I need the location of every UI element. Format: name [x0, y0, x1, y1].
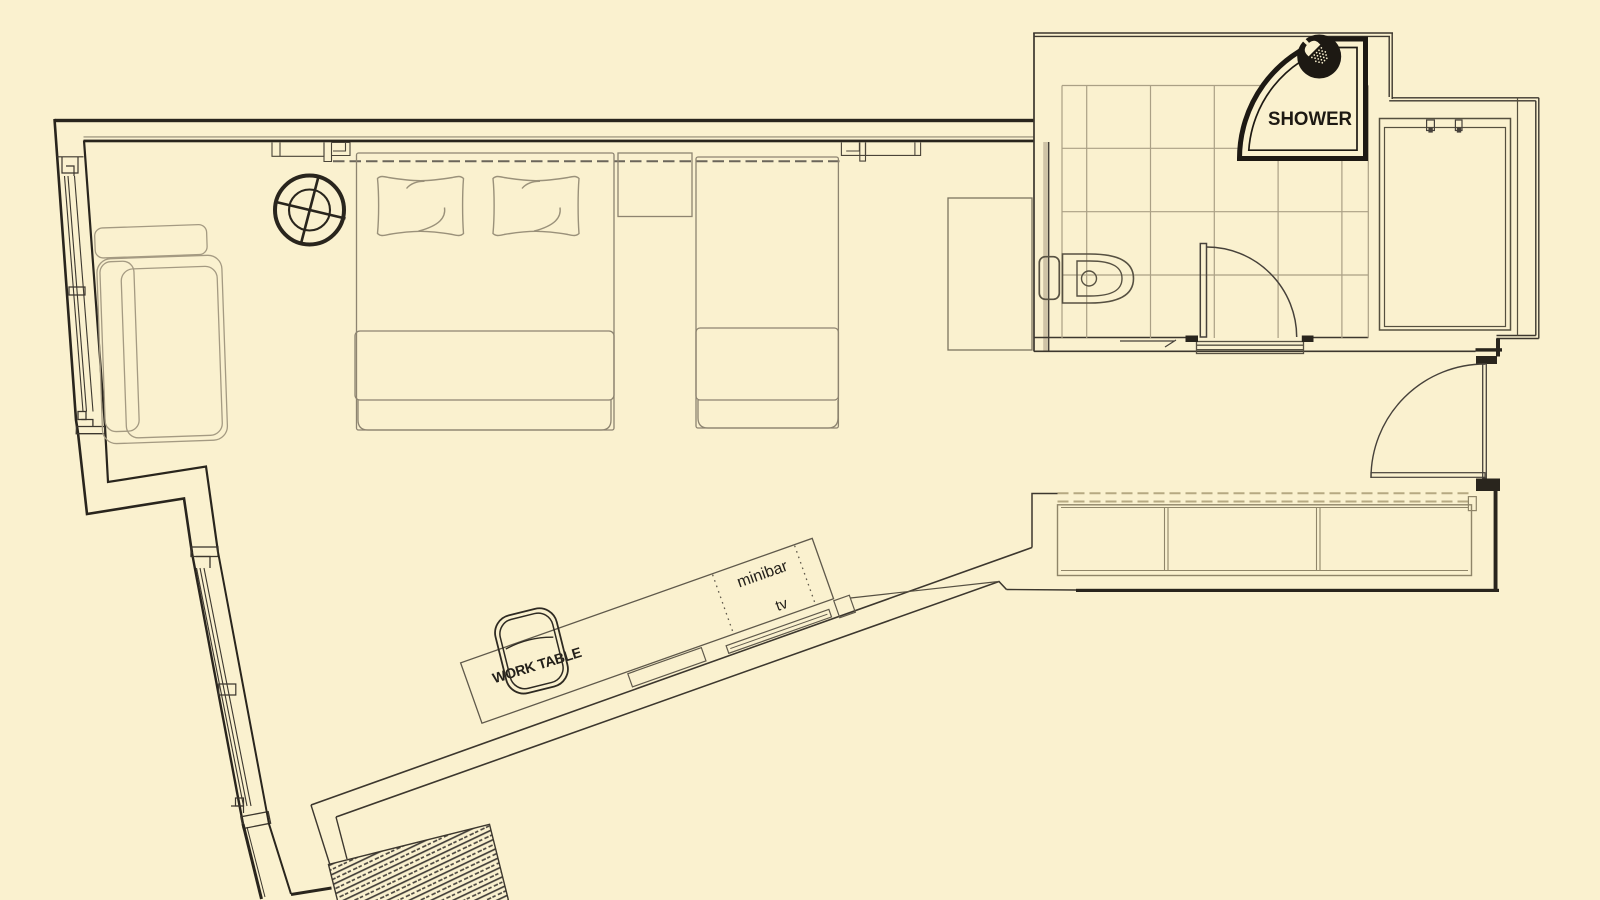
svg-text:SHOWER: SHOWER [1268, 108, 1352, 130]
